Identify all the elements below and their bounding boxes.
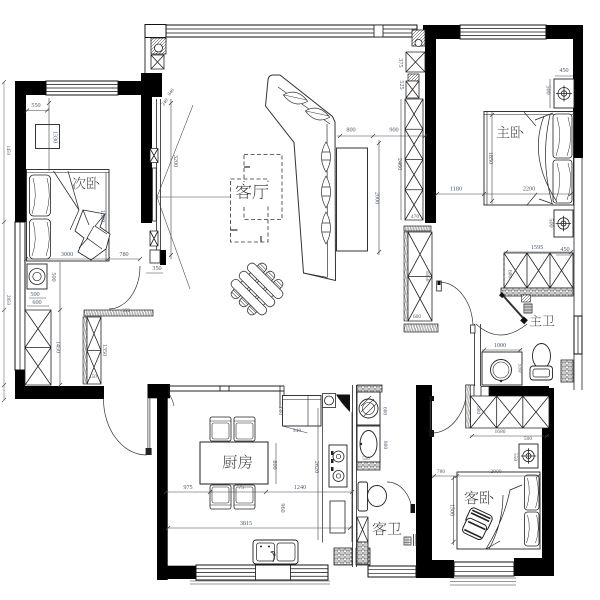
svg-text:975: 975 (183, 484, 192, 491)
svg-text:1850: 1850 (487, 152, 494, 164)
svg-text:1240: 1240 (294, 484, 306, 491)
svg-text:800: 800 (271, 460, 278, 469)
svg-text:940: 940 (293, 428, 302, 434)
svg-text:550: 550 (31, 102, 40, 109)
svg-text:500: 500 (30, 291, 39, 298)
svg-text:3000: 3000 (61, 251, 73, 258)
svg-text:1595: 1595 (531, 244, 543, 251)
svg-text:1680: 1680 (495, 429, 506, 435)
svg-text:500: 500 (524, 436, 533, 442)
svg-text:600: 600 (382, 407, 388, 416)
svg-text:500: 500 (545, 85, 552, 94)
svg-text:2460: 2460 (396, 158, 403, 170)
svg-text:600: 600 (32, 299, 41, 306)
svg-text:470: 470 (411, 214, 420, 220)
svg-text:1850: 1850 (424, 271, 430, 282)
svg-text:1450: 1450 (5, 145, 10, 156)
svg-text:450: 450 (559, 67, 568, 74)
svg-text:3815: 3815 (240, 520, 252, 527)
svg-text:1500: 1500 (449, 504, 456, 516)
svg-text:900: 900 (389, 127, 398, 134)
svg-text:550: 550 (362, 457, 370, 462)
svg-text:800: 800 (346, 127, 355, 134)
svg-text:150: 150 (89, 375, 97, 380)
svg-text:2850: 2850 (5, 295, 10, 306)
svg-text:500: 500 (50, 272, 57, 281)
svg-text:2620: 2620 (313, 461, 320, 473)
svg-text:3200: 3200 (172, 155, 179, 167)
svg-text:1450: 1450 (55, 341, 62, 353)
svg-text:1800: 1800 (99, 210, 106, 222)
svg-text:375: 375 (397, 58, 404, 67)
svg-text:600: 600 (277, 407, 283, 416)
svg-text:1350: 1350 (101, 344, 108, 356)
svg-text:1330: 1330 (52, 131, 59, 143)
svg-text:780: 780 (437, 469, 446, 475)
svg-text:1180: 1180 (450, 186, 462, 193)
svg-text:960: 960 (279, 503, 286, 512)
svg-text:600: 600 (507, 270, 513, 279)
svg-text:550: 550 (517, 363, 524, 372)
svg-text:800: 800 (382, 441, 388, 450)
svg-text:1775: 1775 (232, 484, 244, 491)
svg-text:2000: 2000 (374, 192, 381, 204)
svg-text:600: 600 (475, 406, 481, 415)
svg-text:600: 600 (413, 314, 422, 320)
svg-text:350: 350 (152, 265, 161, 272)
svg-text:2200: 2200 (523, 186, 535, 193)
svg-text:525: 525 (398, 80, 405, 89)
svg-text:2000: 2000 (491, 469, 502, 475)
svg-text:1000: 1000 (494, 342, 506, 349)
svg-text:350: 350 (122, 309, 130, 314)
svg-text:500: 500 (548, 218, 555, 227)
svg-text:780: 780 (119, 251, 128, 258)
svg-text:550: 550 (512, 453, 518, 462)
